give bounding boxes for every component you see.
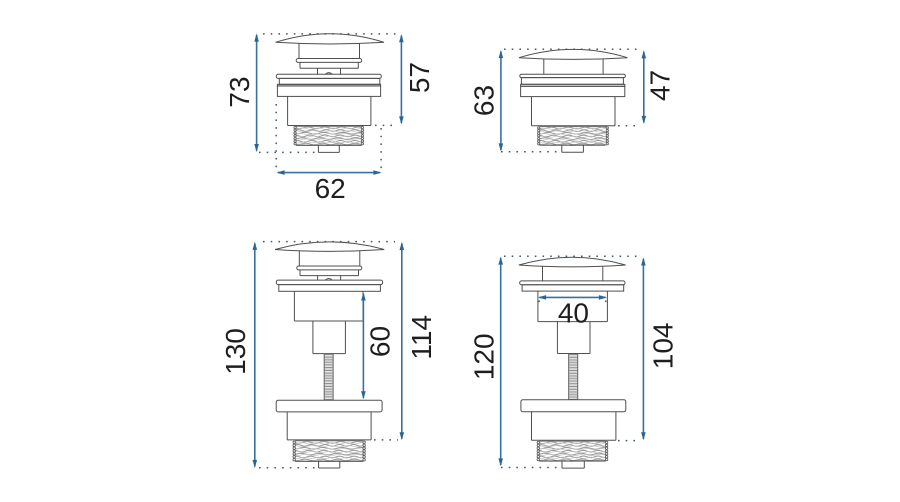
- svg-text:130: 130: [220, 328, 251, 375]
- svg-text:40: 40: [558, 298, 589, 329]
- svg-text:62: 62: [315, 173, 346, 204]
- svg-text:57: 57: [404, 62, 435, 93]
- svg-text:73: 73: [224, 76, 255, 107]
- svg-text:63: 63: [469, 85, 500, 116]
- svg-text:47: 47: [645, 70, 676, 101]
- svg-text:120: 120: [469, 333, 500, 380]
- svg-text:114: 114: [406, 315, 437, 360]
- svg-text:60: 60: [364, 326, 395, 357]
- svg-text:104: 104: [647, 323, 678, 370]
